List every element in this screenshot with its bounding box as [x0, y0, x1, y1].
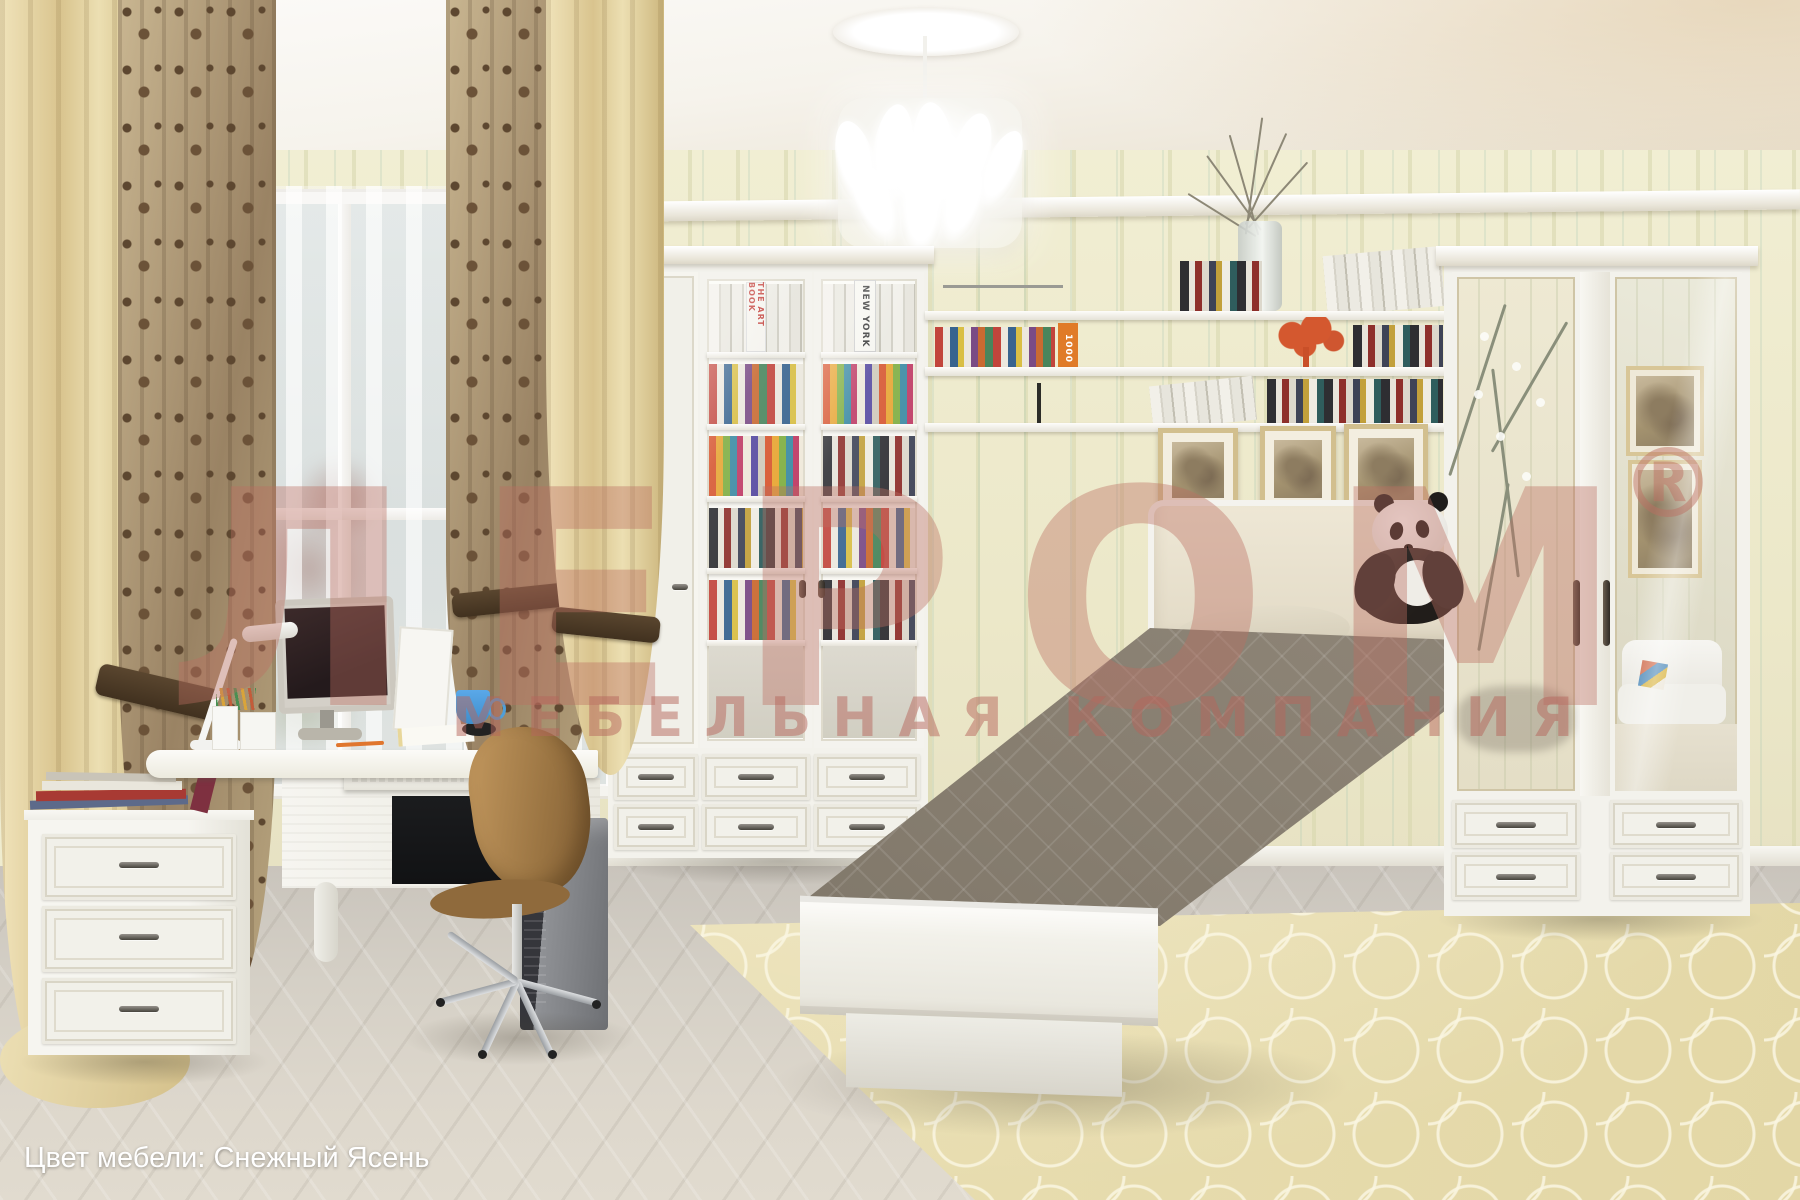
magazine — [42, 781, 182, 790]
chair-caster — [478, 1050, 487, 1059]
wardrobe-cornice — [1436, 246, 1758, 266]
chair-caster — [548, 1050, 557, 1059]
watermark-subtitle: МЕБЕЛЬНАЯ КОМПАНИЯ — [448, 686, 1598, 749]
shelf-board — [925, 367, 1449, 376]
bed-footboard — [800, 896, 1158, 1027]
bedroom-photo: THE ART BOOK NEW YORK — [0, 0, 1800, 1200]
blossom-decal — [1536, 398, 1545, 407]
wall-shelf-unit: 1000 — [925, 235, 1451, 435]
drawer-handle — [119, 862, 159, 868]
chair-column — [512, 904, 522, 982]
books-row — [1323, 246, 1446, 316]
drawer-handle — [1496, 822, 1536, 828]
books-row — [1180, 261, 1262, 311]
drawer-handle — [738, 824, 774, 830]
drawer-handle — [1656, 874, 1696, 880]
drawer-handle — [1656, 822, 1696, 828]
shelf-board — [925, 311, 1449, 320]
furniture-color-caption: Цвет мебели: Снежный Ясень — [24, 1142, 429, 1175]
books-row — [1267, 379, 1443, 425]
bed-plinth — [846, 1013, 1122, 1097]
drawer-handle — [119, 1006, 159, 1012]
coral-tree-trunk — [1303, 347, 1309, 369]
chair-caster — [592, 1000, 601, 1009]
nightstand-top — [24, 810, 254, 820]
books-row — [1353, 325, 1443, 373]
chair-shadow — [400, 1010, 640, 1066]
blossom-decal — [1474, 390, 1483, 399]
drawer-handle — [119, 934, 159, 940]
watermark-registered-icon: ® — [1620, 436, 1716, 532]
blossom-decal — [1512, 362, 1521, 371]
blossom-decal — [1480, 332, 1489, 341]
shelf-rail — [943, 285, 1063, 288]
desk-leg-round — [314, 882, 338, 962]
chair-caster — [436, 998, 445, 1007]
drawer-handle — [849, 824, 885, 830]
wire-bookend — [1037, 383, 1041, 425]
drawer-handle — [1496, 874, 1536, 880]
drawer-handle — [638, 824, 674, 830]
